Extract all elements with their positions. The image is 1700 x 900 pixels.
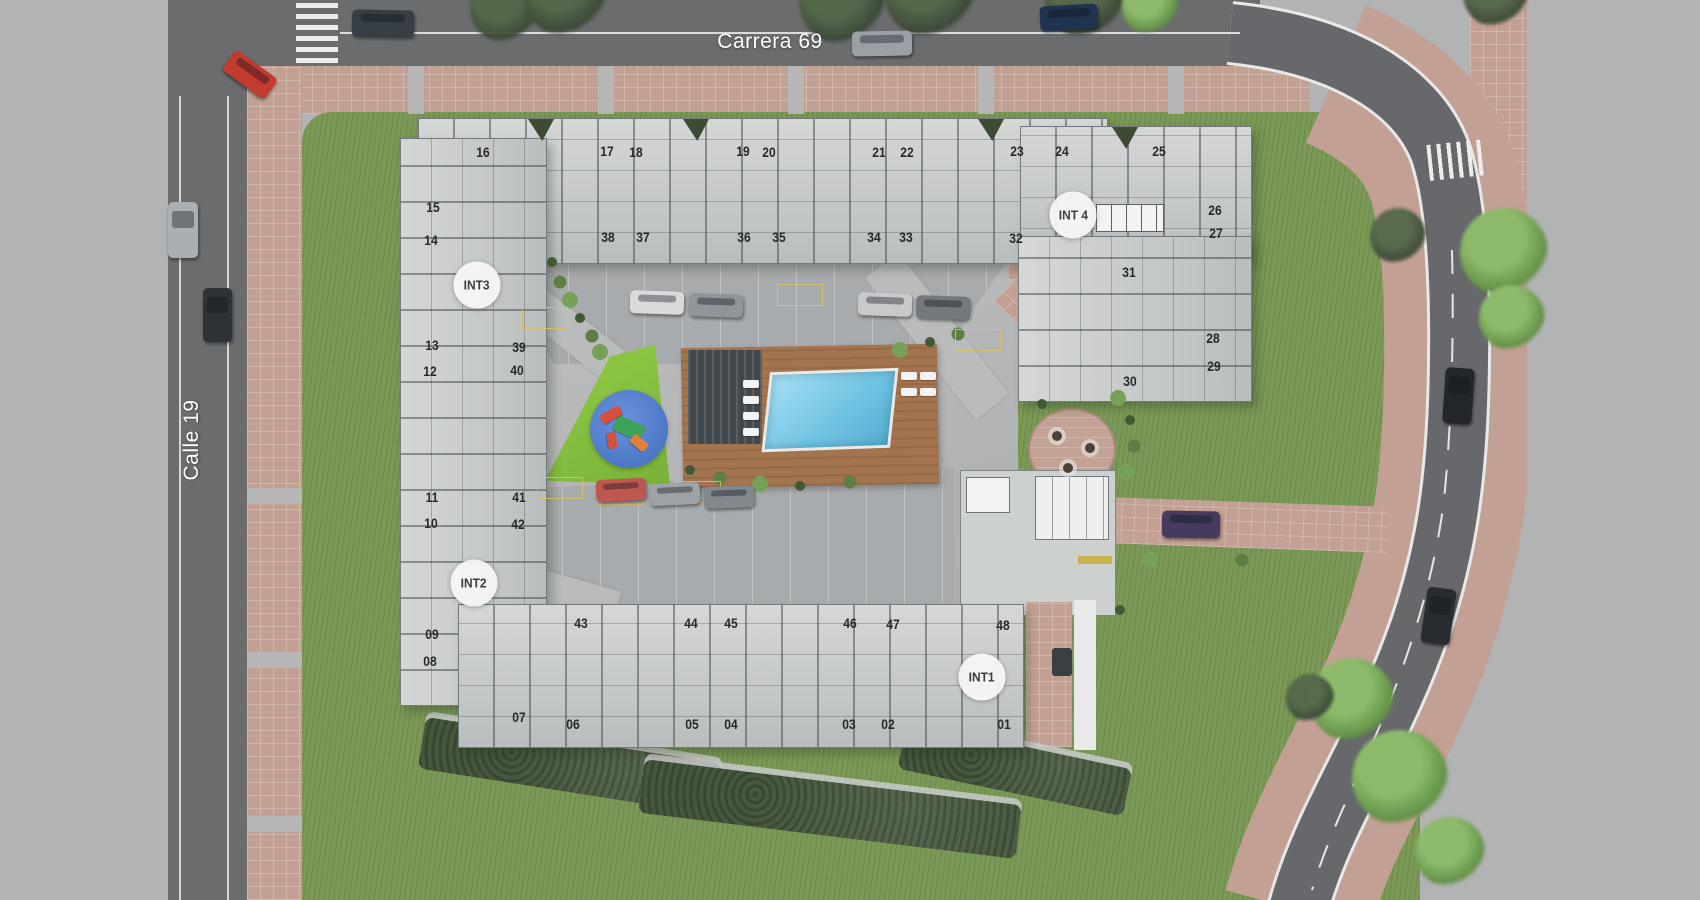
street-name: Carrera 69 <box>717 30 822 53</box>
building-south-bar <box>458 604 1024 748</box>
driveway <box>1107 497 1388 553</box>
stairwell <box>1096 204 1164 232</box>
service-roof <box>1035 476 1109 540</box>
building-east <box>1018 236 1252 402</box>
crosswalk-top <box>296 3 338 63</box>
street-name: Calle 19 <box>180 399 203 480</box>
play-structure-arm <box>606 432 618 449</box>
bbq-grill <box>1052 648 1072 676</box>
right-margin <box>1527 0 1700 900</box>
play-structure-arm <box>629 433 649 452</box>
site-plan: Carrera 69 Calle 19 16171819202122232425… <box>0 0 1700 900</box>
service-counter <box>1078 556 1112 564</box>
service-walk <box>1074 600 1096 750</box>
service-roof-small <box>966 477 1010 513</box>
street-label-calle-19: Calle 19 <box>180 360 210 520</box>
playground <box>590 390 668 468</box>
crosswalk-right <box>1426 139 1487 181</box>
lane-line <box>227 96 229 900</box>
street-label-carrera-69: Carrera 69 <box>700 30 840 54</box>
pergola <box>688 350 762 444</box>
swimming-pool <box>762 368 899 452</box>
